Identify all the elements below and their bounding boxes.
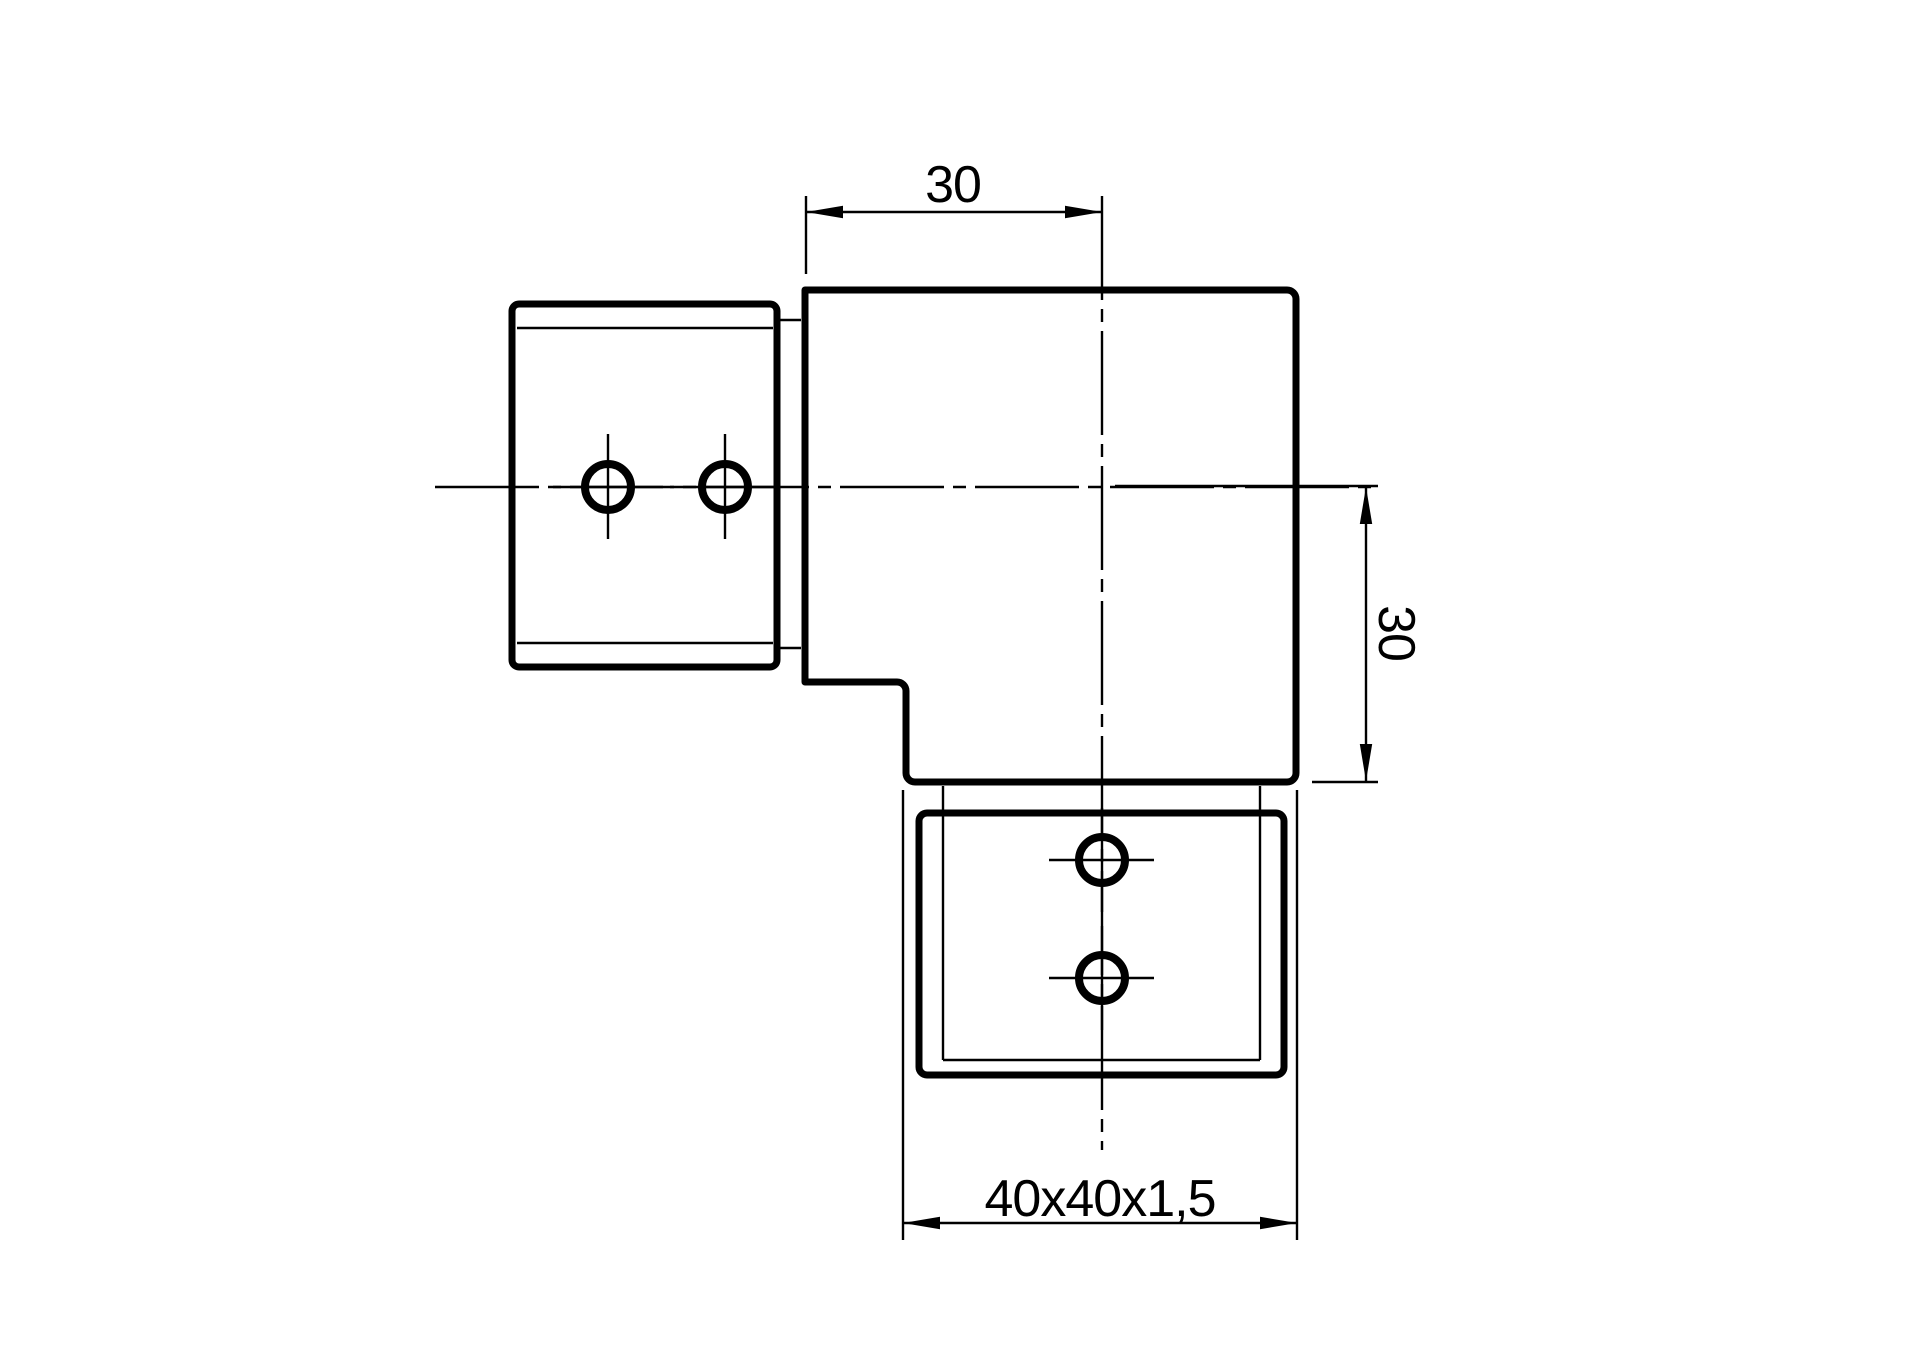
dimension-top-arrow-right: [1065, 206, 1102, 218]
dimension-top-label: 30: [925, 156, 981, 214]
screw-holes: [553, 434, 1154, 1030]
elbow-body: [780, 290, 1296, 782]
dimension-bottom: 40x40x1,5: [903, 790, 1297, 1240]
dimension-right-label: 30: [1367, 605, 1425, 661]
dimension-bottom-arrow-right: [1260, 1217, 1297, 1229]
dimension-right: 30: [1115, 486, 1425, 782]
elbow-body-outline: [805, 290, 1296, 782]
dimension-top: 30: [806, 156, 1102, 274]
dimension-bottom-arrow-left: [903, 1217, 940, 1229]
left-tube: [512, 304, 777, 667]
dimension-bottom-label: 40x40x1,5: [985, 1170, 1216, 1228]
dimension-right-arrow-down: [1360, 744, 1372, 781]
dimension-right-arrow-up: [1360, 487, 1372, 524]
left-tube-outline: [512, 304, 777, 667]
dimension-top-arrow-left: [806, 206, 843, 218]
drawing-sheet: 30 30 40x40x1,5: [0, 0, 1920, 1357]
centerlines: [435, 196, 1378, 1150]
technical-drawing: 30 30 40x40x1,5: [0, 0, 1920, 1357]
